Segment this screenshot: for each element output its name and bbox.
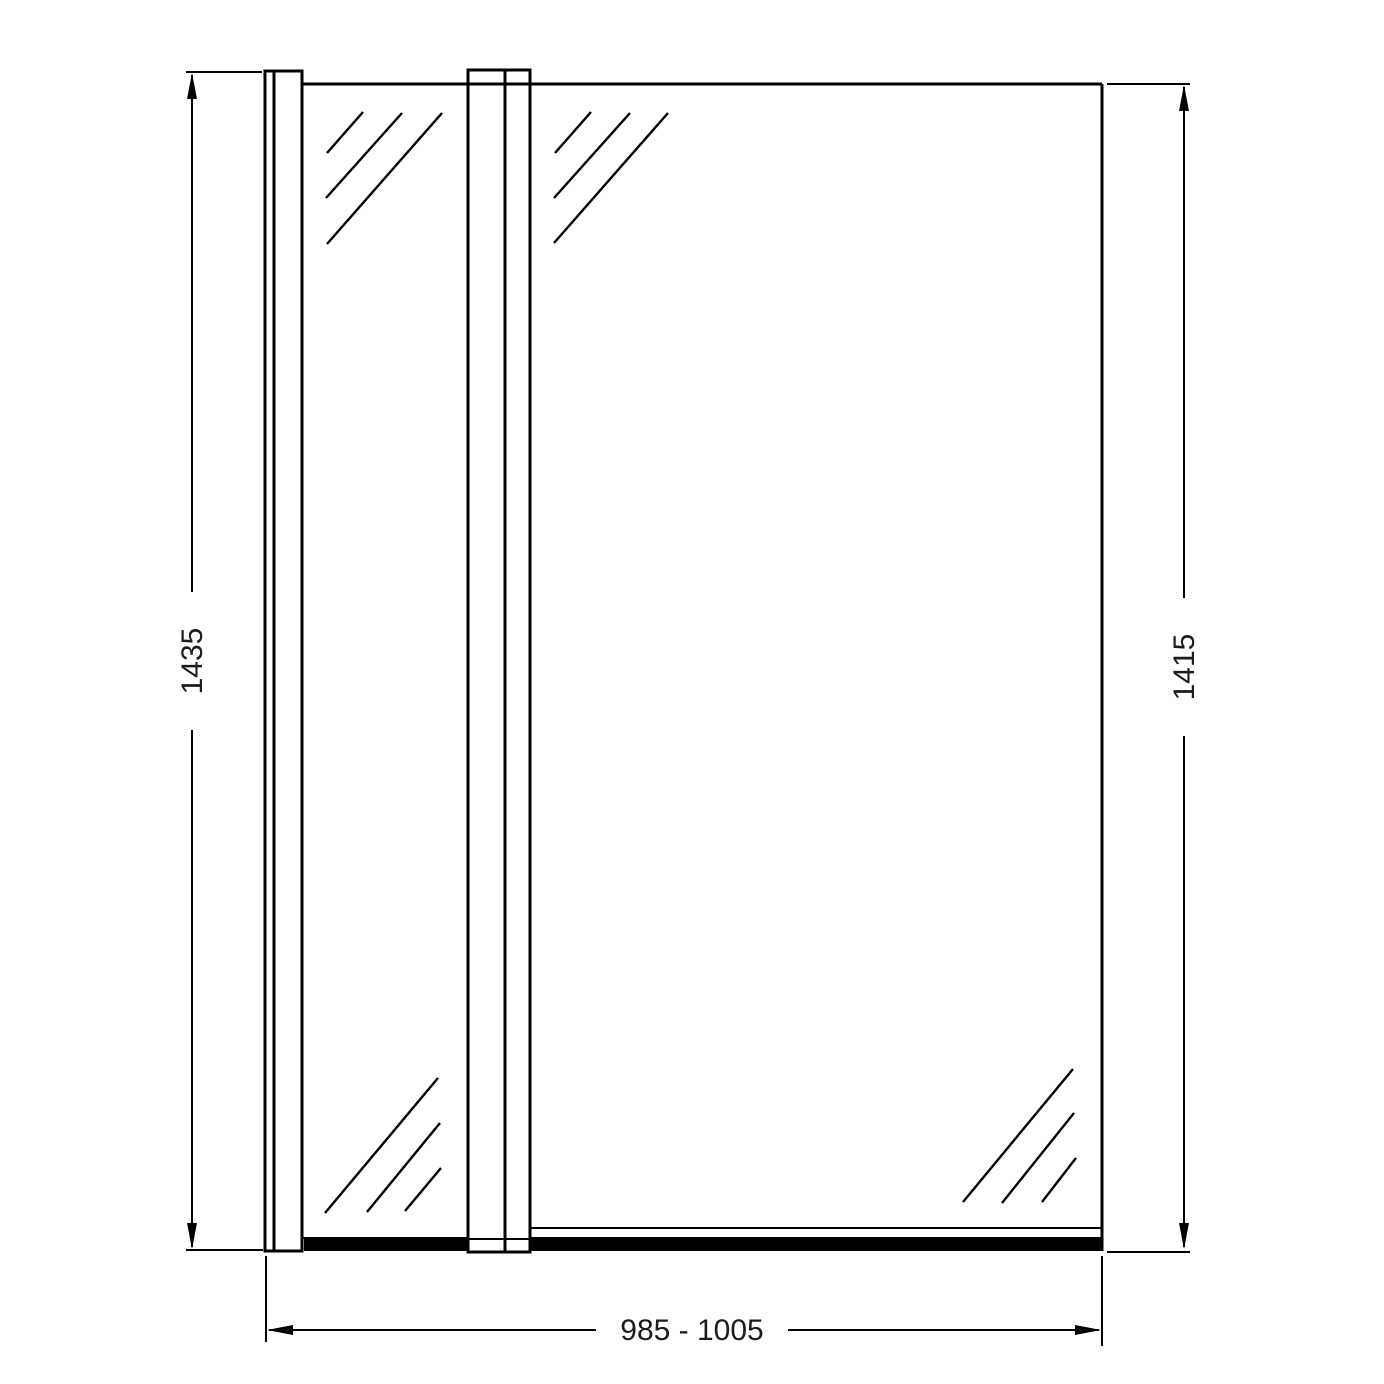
- arrow-down-icon: [187, 1223, 197, 1249]
- arrow-up-icon: [187, 73, 197, 99]
- arrow-down-icon: [1179, 1223, 1189, 1249]
- hinge-profile: [468, 70, 530, 1252]
- arrow-right-icon: [1075, 1325, 1101, 1335]
- wall-profile: [265, 71, 302, 1251]
- main-panel-bottom-seal: [532, 1237, 1101, 1251]
- dimension-bottom-label: 985 - 1005: [620, 1314, 763, 1347]
- dimension-right-height: 1415: [1107, 84, 1201, 1252]
- dimension-right-label: 1415: [1168, 634, 1201, 701]
- drawing-page: 1435 1415 985 - 1005: [0, 0, 1384, 1384]
- main-panel-glass-hatch-top: [554, 112, 668, 243]
- main-panel-glass-hatch-bottom: [963, 1069, 1076, 1203]
- fixed-panel-glass-hatch-top: [326, 112, 442, 244]
- arrow-up-icon: [1179, 85, 1189, 111]
- fixed-panel-glass-hatch-bottom: [325, 1078, 441, 1213]
- dimension-bottom-width: 985 - 1005: [266, 1256, 1102, 1347]
- dimension-left-label: 1435: [176, 628, 209, 695]
- arrow-left-icon: [267, 1325, 293, 1335]
- dimension-left-height: 1435: [176, 72, 263, 1250]
- shower-screen-technical-drawing: 1435 1415 985 - 1005: [0, 0, 1384, 1384]
- fixed-panel-bottom-seal: [304, 1239, 467, 1251]
